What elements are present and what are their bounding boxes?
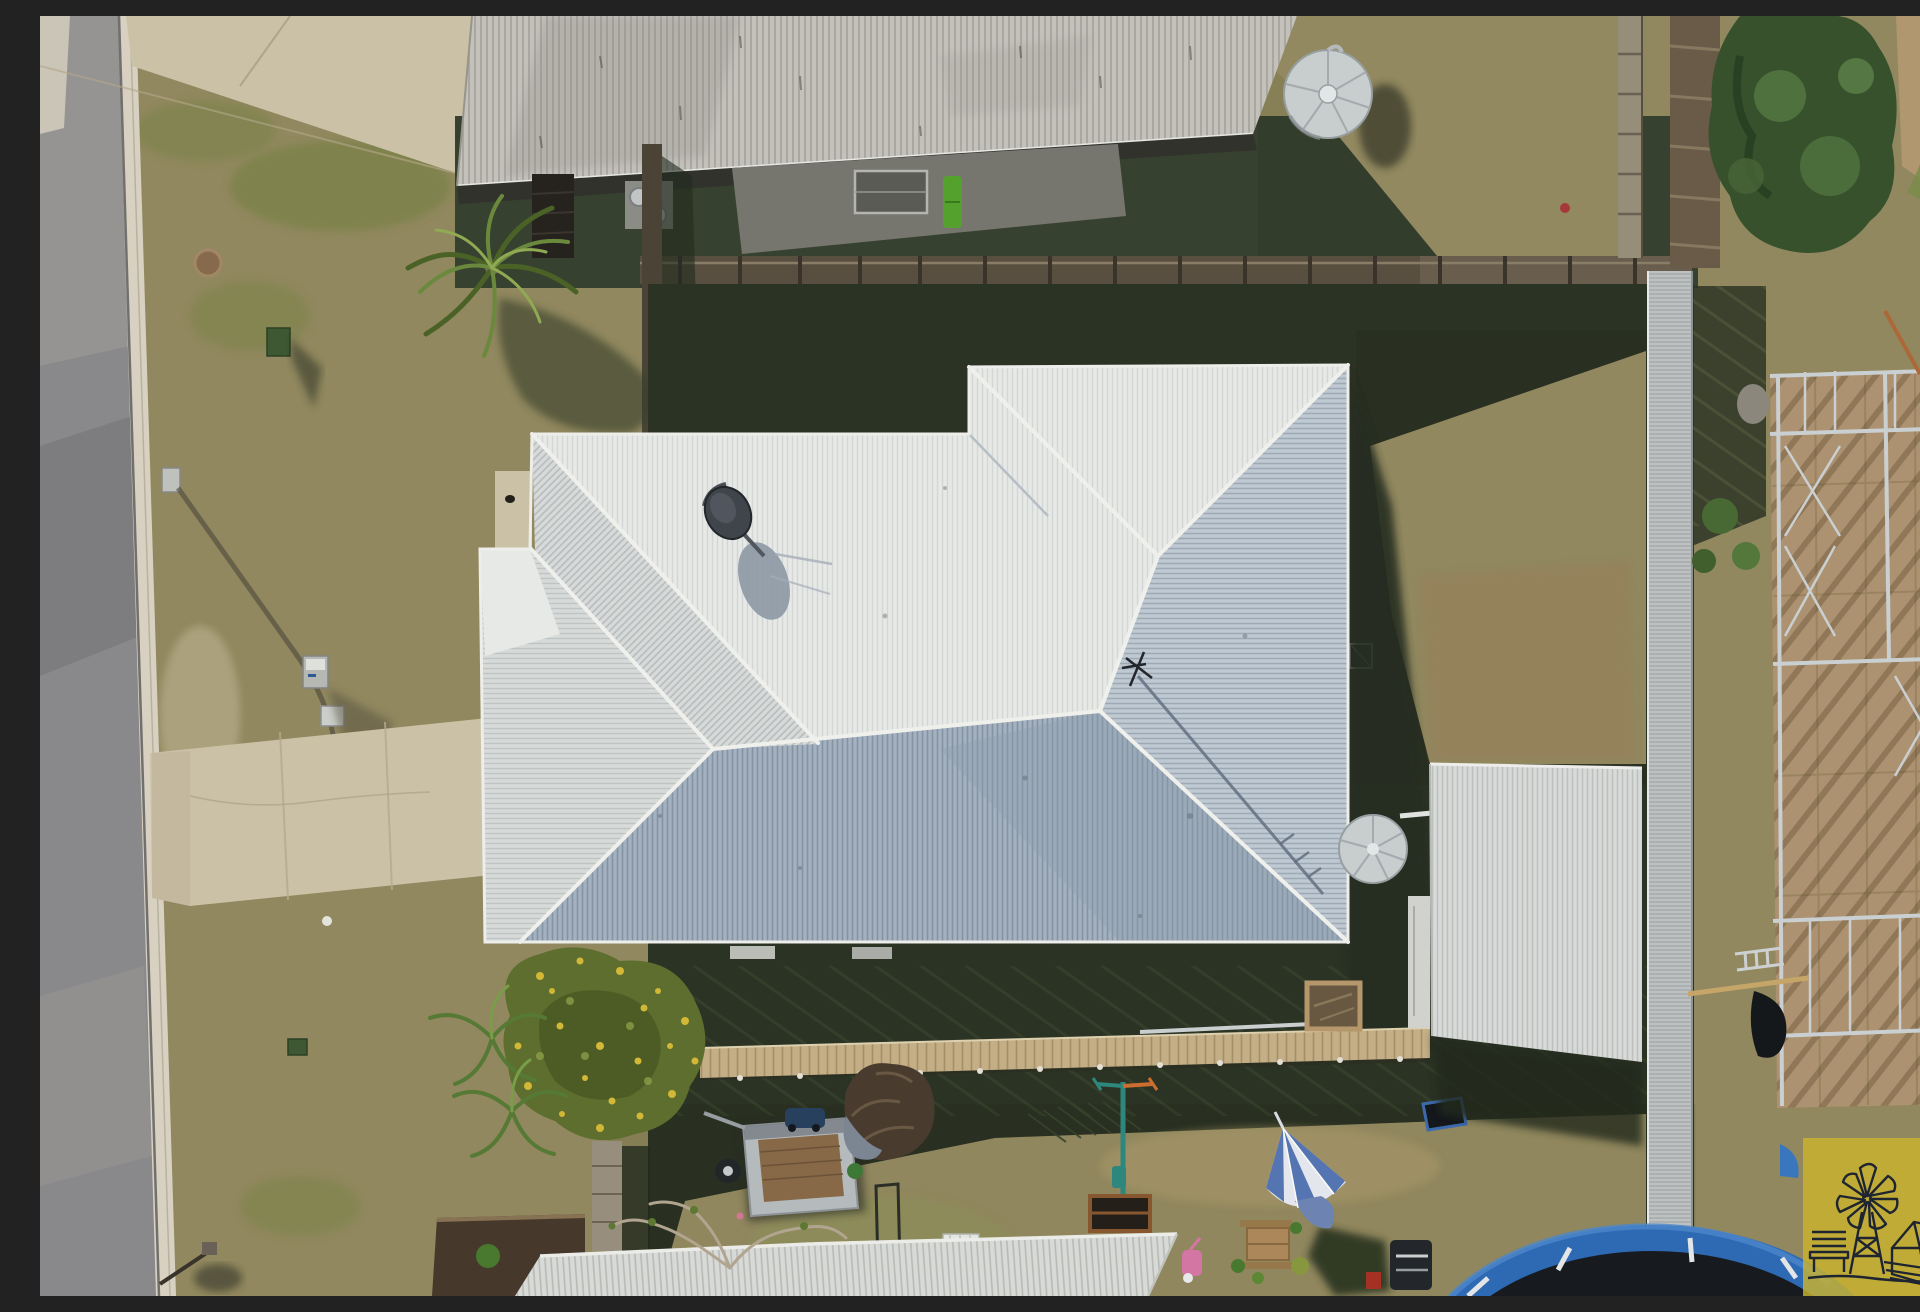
logo-watermark: [1803, 1138, 1920, 1296]
aerial-photo: Top-down aerial drone photo of a residen…: [40, 16, 1920, 1296]
photo-grain: [40, 16, 1920, 1296]
aerial-photo-canvas: [40, 16, 1920, 1296]
